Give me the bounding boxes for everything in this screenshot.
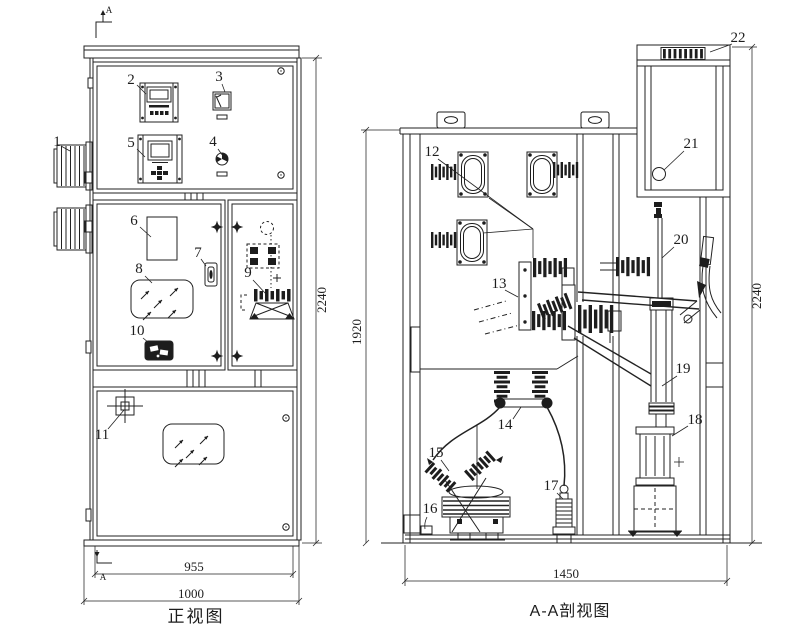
dim-section-inner-height: 1920 [349,319,364,345]
voltage-transformer [424,450,510,540]
callout-13: 13 [492,276,507,292]
cable [547,407,565,486]
dim-front-inner-width: 955 [184,559,204,574]
callout-1: 1 [53,134,61,150]
callout-20: 20 [674,232,689,248]
breaker-compartment-door [93,200,225,370]
callout-15: 15 [429,445,444,461]
observation-window [163,424,224,464]
observation-window [131,280,193,318]
front-view-title: 正视图 [168,607,225,626]
section-view-drawing [361,44,762,586]
mechanism-panel [228,200,297,370]
callout-5: 5 [127,135,135,151]
callout-19: 19 [676,361,691,377]
callout-7: 7 [194,245,202,261]
callout-9: 9 [244,265,252,281]
side-bushing-bottom [54,205,92,253]
section-letter-top: A [106,5,113,15]
grounding-block [421,526,432,534]
callout-21: 21 [684,136,699,152]
top-cap [84,46,299,58]
section-cut-mark-bottom [95,550,113,563]
vertical-duct [649,310,674,427]
section-view-title: A-A剖视图 [530,602,611,620]
instrument-compartment [93,62,297,193]
current-transformer [628,427,684,537]
callout-16: 16 [423,501,439,517]
callout-6: 6 [130,213,138,229]
callout-17: 17 [544,478,560,494]
callout-10: 10 [130,323,145,339]
panel-socket [145,341,173,360]
section-letter-bottom: A [100,572,107,582]
cabinet-body [90,58,301,540]
callout-11: 11 [95,427,109,443]
callout-18: 18 [688,412,703,428]
dim-section-width: 1450 [553,566,579,581]
ventilation-grille [661,48,705,60]
lifting-lug [581,112,609,128]
callout-leaders [61,44,732,529]
nameplate [147,217,177,260]
callout-8: 8 [135,261,143,277]
front-view-drawing [54,10,322,605]
callout-22: 22 [731,30,746,46]
door-knob [653,168,666,181]
callout-2: 2 [127,72,135,88]
dim-section-outer-height: 2240 [749,283,764,309]
callout-14: 14 [498,417,514,433]
callout-3: 3 [215,69,223,85]
racking-aperture [107,389,143,423]
technical-drawing-page: A A 1 2 3 4 5 6 7 8 9 10 11 12 13 14 15 … [0,0,787,627]
lifting-lug [437,112,465,128]
low-voltage-compartment [637,45,730,197]
dim-front-height: 2240 [314,287,329,313]
callout-4: 4 [209,134,217,150]
busbar-shelf [420,356,578,409]
cabinet-base [84,540,299,546]
switchgear-drawing: A A 1 2 3 4 5 6 7 8 9 10 11 12 13 14 15 … [0,0,787,627]
dim-front-outer-width: 1000 [178,586,204,601]
front-dimensions [81,55,322,605]
callout-12: 12 [425,144,440,160]
